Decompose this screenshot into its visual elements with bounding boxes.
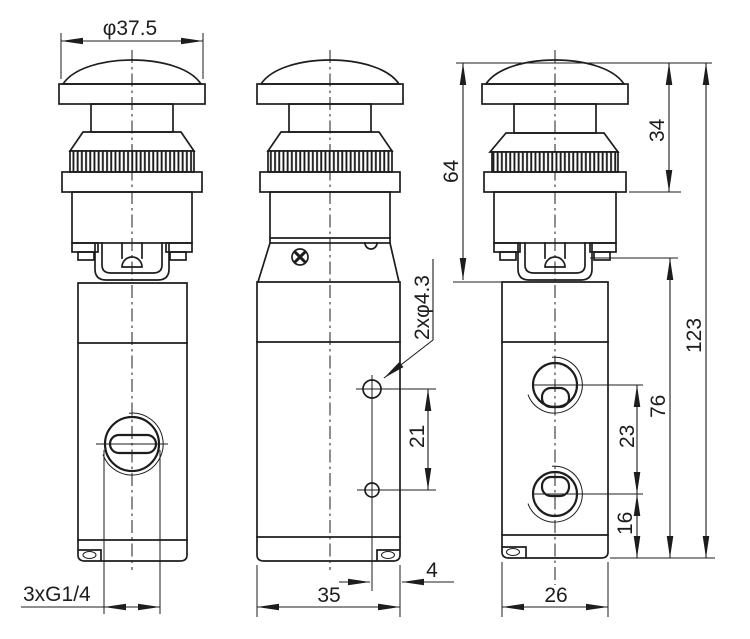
dim-text-body-height: 76 [647, 395, 670, 418]
dim-text-hole-spacing: 21 [406, 425, 429, 448]
valve-body-front [257, 282, 400, 561]
dim-text-hole-to-edge: 4 [426, 559, 438, 582]
dim-text-button-height: 34 [646, 118, 669, 142]
knurl-ring [268, 151, 392, 172]
dim-mount-holes: 2xφ4.3 [384, 259, 434, 378]
knurl-ring [492, 152, 618, 172]
dim-text-actuator-height: 64 [440, 159, 463, 183]
technical-drawing: φ37.5 3xG1/4 2xφ4.3 [0, 0, 750, 639]
view-right-side [482, 60, 643, 558]
port-upper [528, 357, 643, 413]
view-front [257, 60, 436, 591]
center-lines [132, 50, 555, 585]
pin-notch [365, 243, 377, 249]
dim-text-overall-height: 123 [683, 318, 706, 353]
valve-drawing-svg: φ37.5 3xG1/4 2xφ4.3 [0, 0, 750, 639]
dim-text-cap-diameter: φ37.5 [103, 17, 158, 40]
knurl-ring [70, 151, 194, 172]
dim-port-to-base: 16 [614, 494, 637, 558]
dim-hole-to-edge: 4 [339, 559, 454, 582]
phillips-cross-icon [295, 252, 306, 263]
dim-front-width: 35 [257, 565, 400, 617]
dim-text-port-to-base: 16 [614, 512, 637, 535]
dim-text-side-width: 26 [544, 584, 567, 607]
collar [490, 133, 618, 152]
dim-button-height: 34 [629, 63, 681, 192]
dim-text-port-spacing: 23 [616, 425, 639, 448]
dim-port-spacing: 23 [616, 385, 639, 494]
dim-text-port-thread: 3xG1/4 [23, 583, 91, 606]
dim-hole-spacing: 21 [406, 389, 429, 490]
leader-line [384, 340, 433, 378]
side-port [96, 413, 168, 475]
dim-text-front-width: 35 [317, 584, 340, 607]
dim-text-mount-holes: 2xφ4.3 [411, 275, 434, 340]
